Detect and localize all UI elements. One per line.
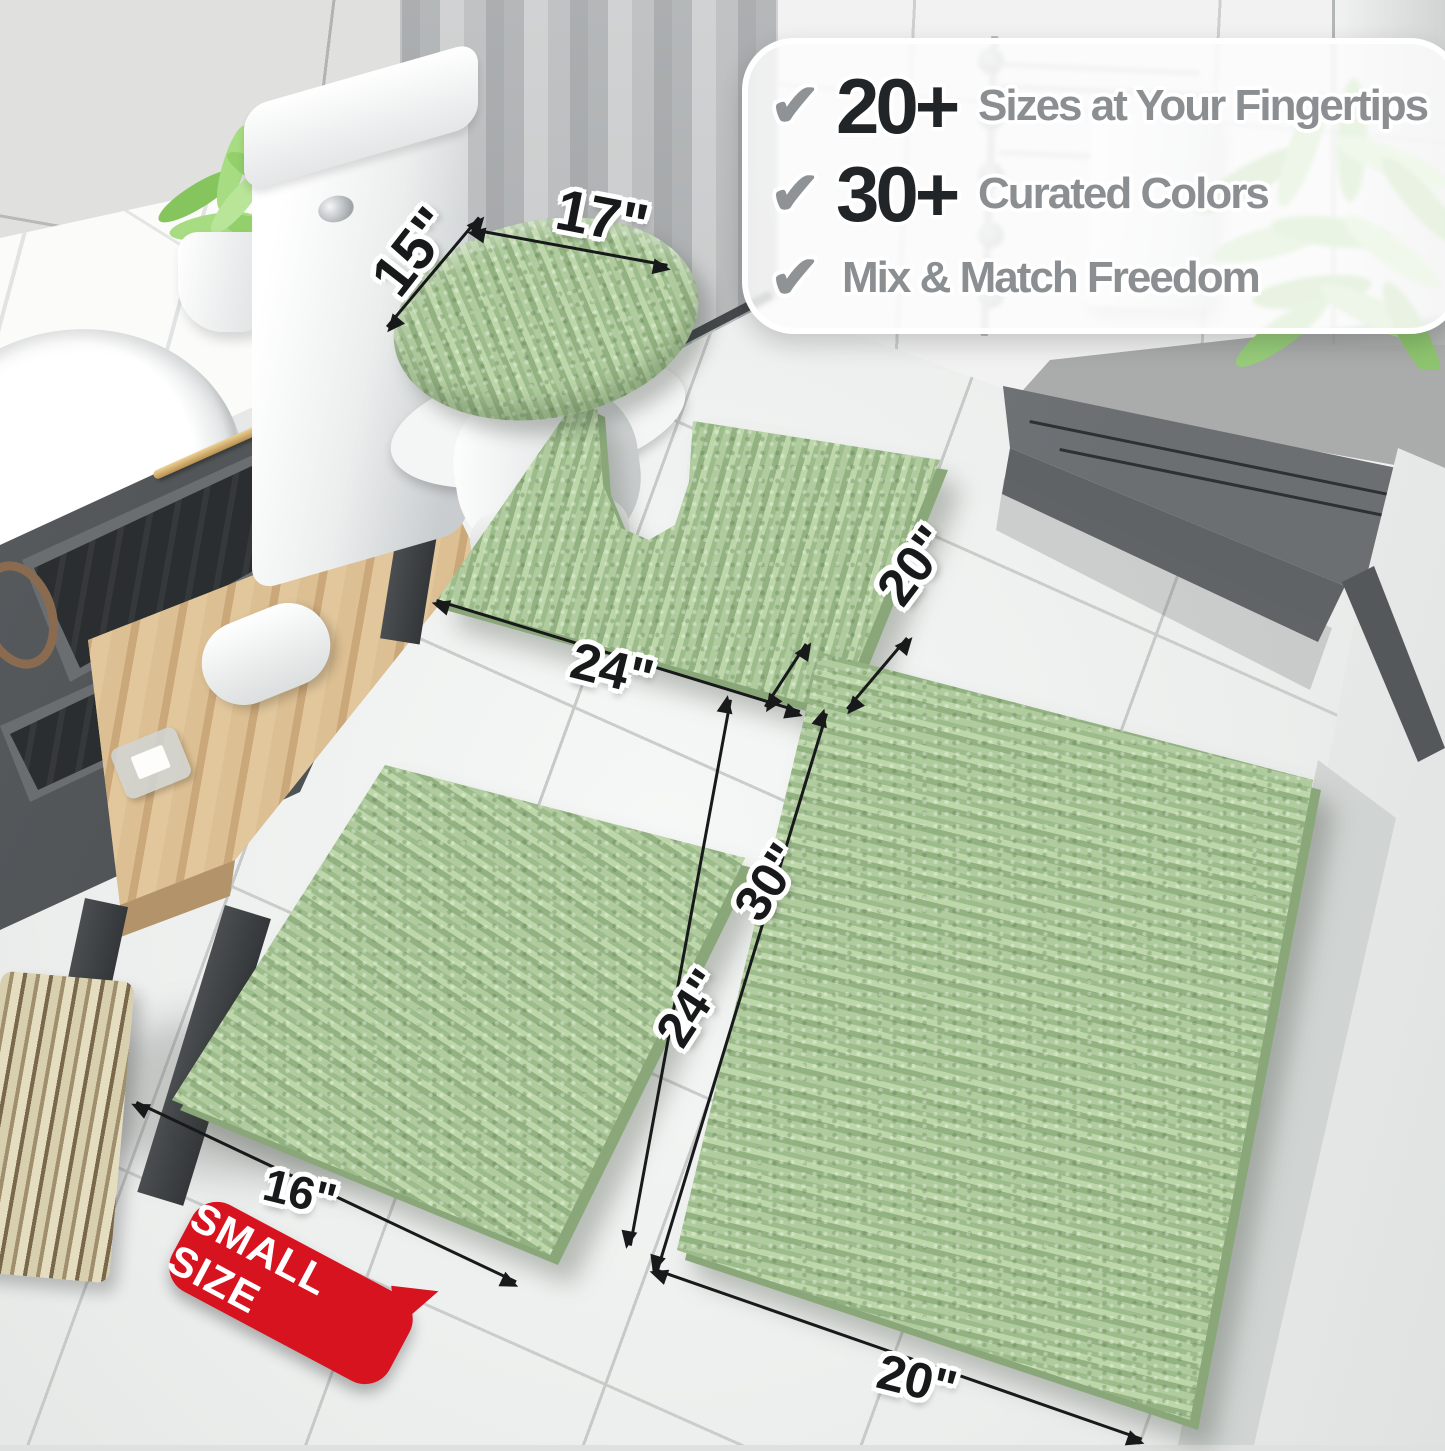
check-icon: ✔ xyxy=(770,243,836,313)
callout-text: Curated Colors xyxy=(978,169,1268,219)
check-icon: ✔ xyxy=(770,71,836,141)
bottle-label xyxy=(130,745,171,780)
callout-row: ✔ 20+ Sizes at Your Fingertips xyxy=(770,62,1445,150)
callout-number: 20+ xyxy=(836,61,978,152)
large-rug xyxy=(677,652,1325,1432)
callout-row: ✔ Mix & Match Freedom xyxy=(770,238,1445,318)
callout-row: ✔ 30+ Curated Colors xyxy=(770,150,1445,238)
feature-callout: ✔ 20+ Sizes at Your Fingertips ✔ 30+ Cur… xyxy=(742,38,1445,334)
check-icon: ✔ xyxy=(770,159,836,229)
callout-number: 30+ xyxy=(836,149,978,240)
callout-text: Sizes at Your Fingertips xyxy=(978,81,1427,131)
large-rug-wrap xyxy=(677,652,1325,1432)
callout-text: Mix & Match Freedom xyxy=(842,253,1259,303)
badge-tail xyxy=(391,1279,442,1327)
